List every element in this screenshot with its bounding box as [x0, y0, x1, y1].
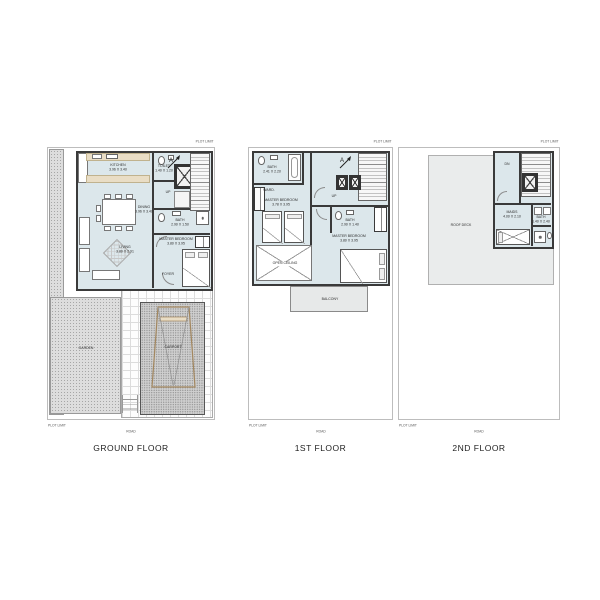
garden-area	[50, 297, 121, 414]
kitchen-sink	[106, 154, 118, 159]
pillow	[498, 232, 503, 243]
room-dims: 2.90 X 1.40	[341, 223, 359, 228]
chair	[104, 194, 111, 199]
sofa	[92, 270, 120, 280]
chair	[104, 226, 111, 231]
chair	[115, 194, 122, 199]
section-marker-icon: A	[166, 154, 182, 170]
maids-room-label: MAIDS 4.00 X 2.10	[503, 210, 521, 219]
stairs-up-label: UP	[332, 195, 337, 200]
bed	[496, 229, 530, 245]
bath-sink	[270, 155, 278, 160]
interior-wall	[330, 207, 332, 233]
bed	[262, 211, 282, 243]
section-marker-icon: A	[338, 155, 353, 170]
road-label: ROAD	[316, 430, 326, 433]
staircase	[358, 153, 387, 201]
room-name: WARD.	[263, 189, 274, 194]
room-dims: 3.96 X 3.40	[109, 168, 127, 173]
bed	[182, 249, 210, 287]
floor-plans-sheet: PLOT LIMIT PLOT LIMIT ROAD GARDEN CARPOR…	[0, 0, 600, 600]
shower	[534, 231, 546, 243]
elevator-shaft	[522, 173, 538, 192]
first-floor-plan: PLOT LIMIT PLOT LIMIT ROAD BALCONY BATH …	[248, 147, 393, 420]
bath-sink	[346, 210, 354, 215]
door-arc	[314, 187, 325, 198]
living-label: LIVING 3.80 X 2.91	[116, 245, 134, 254]
dining-table	[102, 199, 136, 225]
kitchen-label: KITCHEN 3.96 X 3.40	[109, 163, 127, 172]
bath-label: BATH 1.40 X 2.40	[532, 215, 550, 224]
svg-text:A: A	[169, 158, 173, 164]
second-floor-plan: PLOT LIMIT PLOT LIMIT ROAD ROOF DECK DN …	[398, 147, 560, 420]
open-ceiling: OPEN CEILING	[256, 245, 312, 281]
bath-wc	[158, 213, 165, 222]
dryer	[543, 207, 551, 215]
interior-wall	[152, 153, 154, 288]
second-floor-caption: 2ND FLOOR	[398, 443, 560, 453]
interior-wall	[310, 153, 312, 245]
pillow	[198, 252, 208, 258]
room-name: OPEN CEILING	[273, 262, 298, 267]
interior-wall	[495, 203, 551, 205]
bath-wc	[547, 232, 552, 239]
room-dims: 2.90 X 1.50	[171, 223, 189, 228]
chair	[115, 226, 122, 231]
elevator-shaft	[336, 175, 348, 190]
staircase	[190, 153, 210, 211]
balcony: BALCONY	[290, 286, 368, 312]
open-ceiling-label: OPEN CEILING	[271, 262, 298, 267]
sofa	[79, 248, 90, 272]
interior-wall	[154, 233, 210, 235]
interior-wall	[154, 180, 176, 182]
balcony-label: BALCONY	[322, 298, 339, 303]
chair	[126, 226, 133, 231]
plot-limit-label: PLOT LIMIT	[541, 140, 559, 143]
entry-steps	[122, 395, 138, 413]
bed-fold	[341, 250, 363, 284]
pillow	[185, 252, 195, 258]
garden-label: GARDEN	[79, 347, 94, 352]
wardrobe-label: WARD.	[263, 189, 274, 194]
bed-fold	[285, 228, 305, 244]
shaft	[349, 175, 361, 190]
stairs-up-label: UP	[166, 191, 171, 196]
interior-wall	[519, 153, 521, 203]
first-floor-house: BATH 2.41 X 2.20 WARD. MASTER BEDROOM 3.…	[252, 151, 390, 286]
chair	[96, 205, 101, 212]
interior-wall	[533, 225, 551, 227]
room-dims: 4.00 X 2.10	[503, 215, 521, 220]
dining-label: DINING 3.96 X 3.40	[135, 205, 153, 214]
room-name: ROOF DECK	[451, 224, 472, 229]
shower	[196, 211, 209, 225]
first-floor-caption: 1ST FLOOR	[248, 443, 393, 453]
plot-limit-label: PLOT LIMIT	[399, 424, 417, 427]
stair-landing	[174, 191, 190, 208]
plot-limit-label: PLOT LIMIT	[48, 424, 66, 427]
sofa	[79, 217, 90, 245]
room-dims: 3.80 X 2.91	[116, 250, 134, 255]
room-dims: 2.41 X 2.20	[263, 170, 281, 175]
pillow	[379, 253, 385, 265]
ground-floor-caption: GROUND FLOOR	[47, 443, 215, 453]
master-bedroom-right-label: MASTER BEDROOM 3.80 X 3.95	[332, 234, 365, 243]
stove	[92, 154, 102, 159]
room-name: FOYER	[162, 273, 174, 278]
pillow	[379, 268, 385, 280]
pillow	[287, 214, 302, 219]
chair	[96, 215, 101, 222]
plot-limit-label: PLOT LIMIT	[196, 140, 214, 143]
stairs-down-label: DN	[504, 163, 509, 168]
kitchen-island	[86, 175, 150, 183]
bath-right-label: BATH 2.90 X 1.40	[341, 218, 359, 227]
plot-limit-label: PLOT LIMIT	[249, 424, 267, 427]
bed	[340, 249, 387, 283]
road-label: ROAD	[474, 430, 484, 433]
bathtub	[288, 154, 301, 181]
bath-wc	[258, 156, 265, 165]
plot-limit-label: PLOT LIMIT	[374, 140, 392, 143]
wardrobe	[195, 236, 210, 248]
road-label: ROAD	[126, 430, 136, 433]
door-arc	[316, 209, 327, 220]
svg-text:A: A	[340, 158, 344, 164]
bath-left-label: BATH 2.41 X 2.20	[263, 165, 281, 174]
room-name: BALCONY	[322, 298, 339, 303]
room-dims: 1.40 X 2.40	[532, 220, 550, 225]
room-dims: 3.78 X 3.95	[264, 203, 297, 208]
room-dims: 3.80 X 3.95	[159, 242, 192, 247]
room-dims: 3.80 X 3.95	[332, 239, 365, 244]
ground-floor-plan: PLOT LIMIT PLOT LIMIT ROAD GARDEN CARPOR…	[47, 147, 215, 420]
door-arc	[497, 191, 507, 201]
interior-wall	[302, 153, 304, 185]
bath-sink	[172, 211, 181, 216]
chair	[126, 194, 133, 199]
room-name: GARDEN	[79, 347, 94, 352]
roof-deck-label: ROOF DECK	[451, 224, 472, 229]
washer	[534, 207, 542, 215]
bed-fold	[263, 228, 283, 244]
foyer-label: FOYER	[162, 273, 174, 278]
bed	[284, 211, 304, 243]
ground-floor-house: KITCHEN 3.96 X 3.40 DINING 3.96 X 3.40	[76, 151, 213, 291]
interior-wall	[254, 183, 304, 185]
room-dims: 3.96 X 3.40	[135, 210, 153, 215]
master-bedroom-label: MASTER BEDROOM 3.80 X 3.95	[159, 237, 192, 246]
second-floor-house: DN MAIDS 4.00 X 2.10 BATH 1.40 X 2.40	[493, 151, 554, 249]
master-bedroom-left-label: MASTER BEDROOM 3.78 X 3.95	[264, 198, 297, 207]
bath-label: BATH 2.90 X 1.50	[171, 218, 189, 227]
room-name: CARPORT	[165, 346, 182, 351]
bed-fold	[183, 268, 211, 288]
pillow	[265, 214, 280, 219]
carport-label: CARPORT	[165, 346, 182, 351]
wardrobe	[374, 207, 387, 232]
